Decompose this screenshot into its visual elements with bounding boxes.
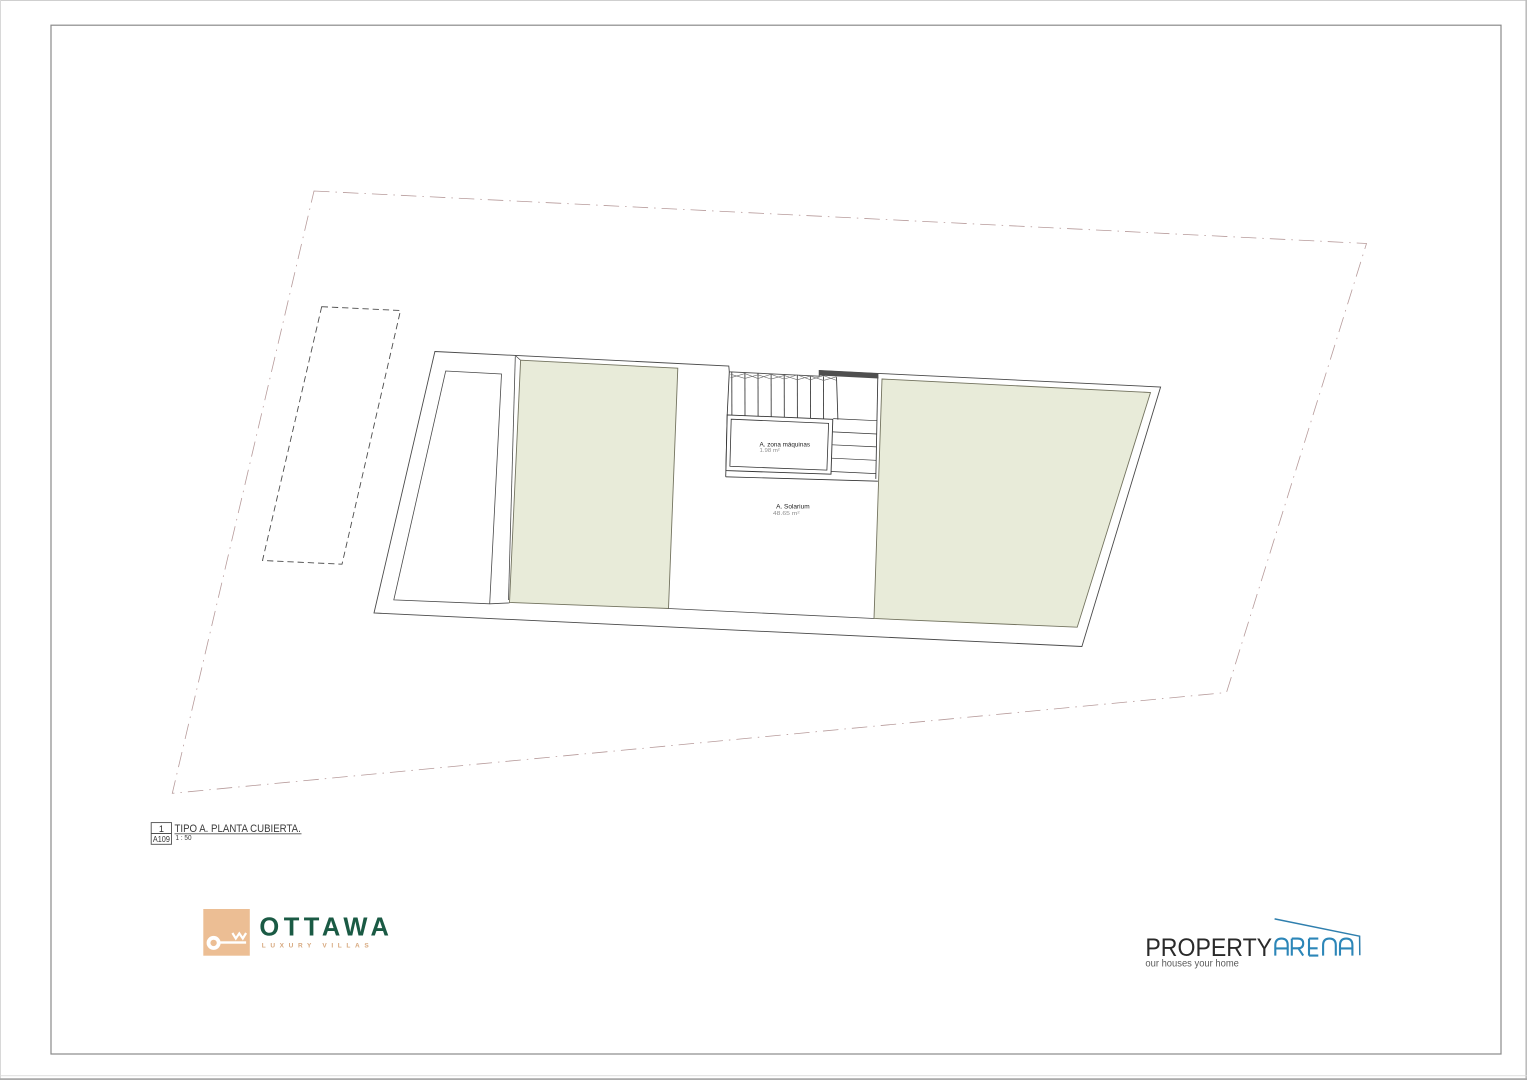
svg-text:1.98 m²: 1.98 m² bbox=[760, 448, 780, 454]
svg-text:1 : 50: 1 : 50 bbox=[176, 833, 192, 842]
svg-text:A109: A109 bbox=[153, 835, 170, 844]
svg-text:A. Solarium: A. Solarium bbox=[776, 503, 810, 510]
svg-text:TIPO A. PLANTA CUBIERTA.: TIPO A. PLANTA CUBIERTA. bbox=[175, 823, 301, 835]
svg-text:48.65 m²: 48.65 m² bbox=[773, 511, 800, 517]
svg-text:LUXURY VILLAS: LUXURY VILLAS bbox=[262, 942, 370, 949]
svg-text:1: 1 bbox=[159, 824, 164, 834]
svg-text:our houses your home: our houses your home bbox=[1145, 959, 1239, 970]
svg-text:OTTAWA: OTTAWA bbox=[259, 914, 389, 942]
